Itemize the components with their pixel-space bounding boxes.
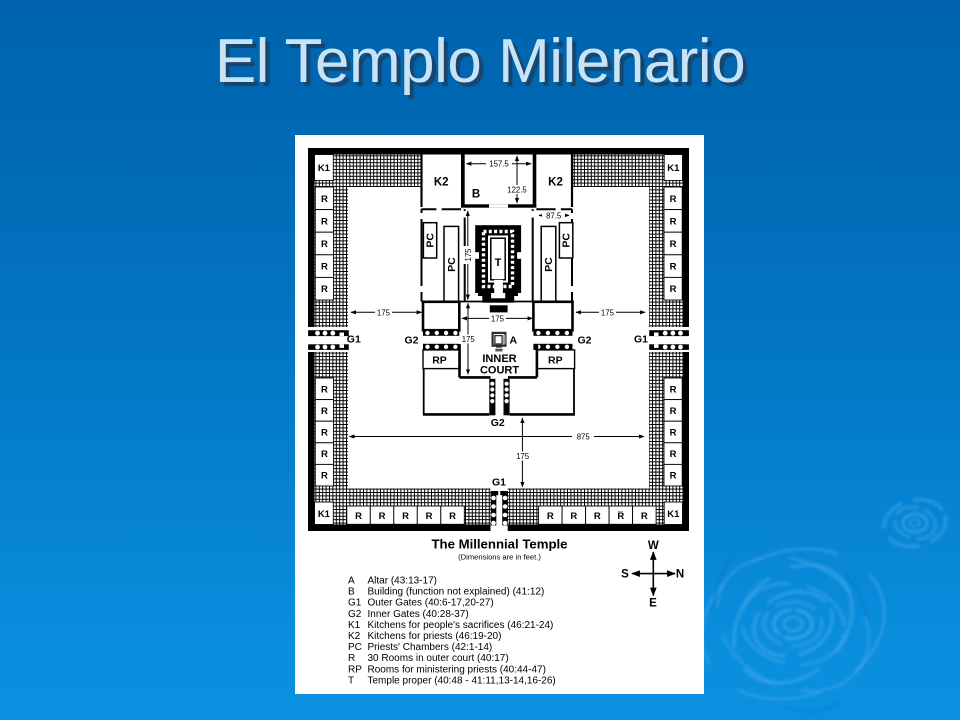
svg-text:R: R [426,511,433,522]
svg-text:PC: PC [446,257,458,272]
svg-text:PC: PC [348,642,362,653]
svg-text:R: R [670,194,677,205]
svg-text:R: R [670,406,677,417]
svg-text:R: R [570,511,577,522]
svg-text:COURT: COURT [480,364,519,376]
svg-text:122.5: 122.5 [507,186,527,195]
svg-text:R: R [402,511,409,522]
svg-text:175: 175 [377,308,391,317]
svg-text:R: R [670,384,677,395]
svg-text:175: 175 [462,335,476,344]
svg-text:R: R [321,262,328,273]
svg-text:Building (function not explain: Building (function not explained) (41:12… [368,587,545,598]
svg-text:R: R [670,284,677,295]
svg-text:R: R [321,384,328,395]
svg-text:Kitchens for people's sacrific: Kitchens for people's sacrifices (46:21-… [368,620,554,631]
svg-text:157.5: 157.5 [489,160,509,169]
svg-text:A: A [510,335,518,347]
svg-text:PC: PC [543,257,555,272]
svg-text:R: R [321,284,328,295]
svg-text:W: W [648,540,659,552]
svg-text:RP: RP [432,354,447,366]
svg-text:G2: G2 [348,609,362,620]
svg-text:R: R [321,471,328,482]
svg-text:R: R [641,511,648,522]
svg-text:INNER: INNER [482,353,516,365]
svg-text:RP: RP [348,664,362,675]
svg-text:T: T [495,257,502,269]
svg-text:Priests' Chambers (42:1-14): Priests' Chambers (42:1-14) [368,642,493,653]
svg-text:R: R [321,449,328,460]
svg-text:Inner Gates (40:28-37): Inner Gates (40:28-37) [368,609,469,620]
svg-text:K1: K1 [348,620,361,631]
svg-text:R: R [670,471,677,482]
svg-text:R: R [670,449,677,460]
svg-text:R: R [379,511,386,522]
svg-text:K2: K2 [548,177,563,189]
svg-text:R̅: R̅ [617,511,624,522]
svg-text:R: R [670,262,677,273]
svg-text:R: R [547,511,554,522]
svg-text:R: R [348,653,355,664]
svg-text:G1: G1 [347,334,361,346]
svg-text:R: R [355,511,362,522]
svg-text:R: R [670,216,677,227]
svg-text:(Dimensions are in feet.): (Dimensions are in feet.) [458,553,541,562]
svg-text:RP: RP [548,354,563,366]
svg-text:175: 175 [516,452,530,461]
svg-text:R: R [594,511,601,522]
svg-text:K1: K1 [667,163,680,174]
svg-text:K2: K2 [434,177,449,189]
svg-text:R: R [321,194,328,205]
svg-text:The Millennial Temple: The Millennial Temple [431,537,567,552]
svg-text:E: E [649,598,657,610]
svg-text:N: N [676,569,684,581]
svg-text:B: B [472,189,480,201]
svg-text:PC: PC [425,233,437,248]
svg-text:S: S [621,569,629,581]
svg-text:R: R [670,239,677,250]
svg-text:R: R [321,406,328,417]
svg-text:R: R [321,239,328,250]
svg-text:175: 175 [491,314,505,323]
svg-text:R: R [321,216,328,227]
svg-text:A: A [348,576,355,587]
svg-text:G1: G1 [492,477,506,489]
svg-text:G1: G1 [348,598,362,609]
svg-text:R: R [670,428,677,439]
svg-text:Altar (43:13-17): Altar (43:13-17) [368,576,437,587]
svg-text:R: R [321,428,328,439]
svg-text:175: 175 [601,308,615,317]
svg-text:Outer Gates (40:6-17,20-27): Outer Gates (40:6-17,20-27) [368,598,494,609]
svg-text:Rooms for ministering priests: Rooms for ministering priests (40:44-47) [368,664,546,675]
svg-text:K1: K1 [318,509,331,520]
svg-text:G1: G1 [634,334,648,346]
svg-text:K2: K2 [348,631,361,642]
svg-text:875: 875 [577,433,591,442]
svg-text:Temple proper (40:48 - 41:11,1: Temple proper (40:48 - 41:11,13-14,16-26… [368,675,556,686]
svg-text:175: 175 [464,248,473,262]
svg-text:G2: G2 [577,335,591,347]
svg-text:30 Rooms in outer court (40:17: 30 Rooms in outer court (40:17) [368,653,509,664]
svg-text:B: B [348,587,355,598]
svg-text:G2: G2 [404,335,418,347]
svg-text:PC: PC [561,233,573,248]
svg-text:87.5: 87.5 [546,211,562,220]
svg-text:K1: K1 [318,163,331,174]
svg-text:K1: K1 [667,509,680,520]
svg-text:T: T [348,675,354,686]
svg-text:G2: G2 [491,417,505,429]
svg-text:R: R [449,511,456,522]
svg-text:Kitchens for priests (46:19-20: Kitchens for priests (46:19-20) [368,631,502,642]
